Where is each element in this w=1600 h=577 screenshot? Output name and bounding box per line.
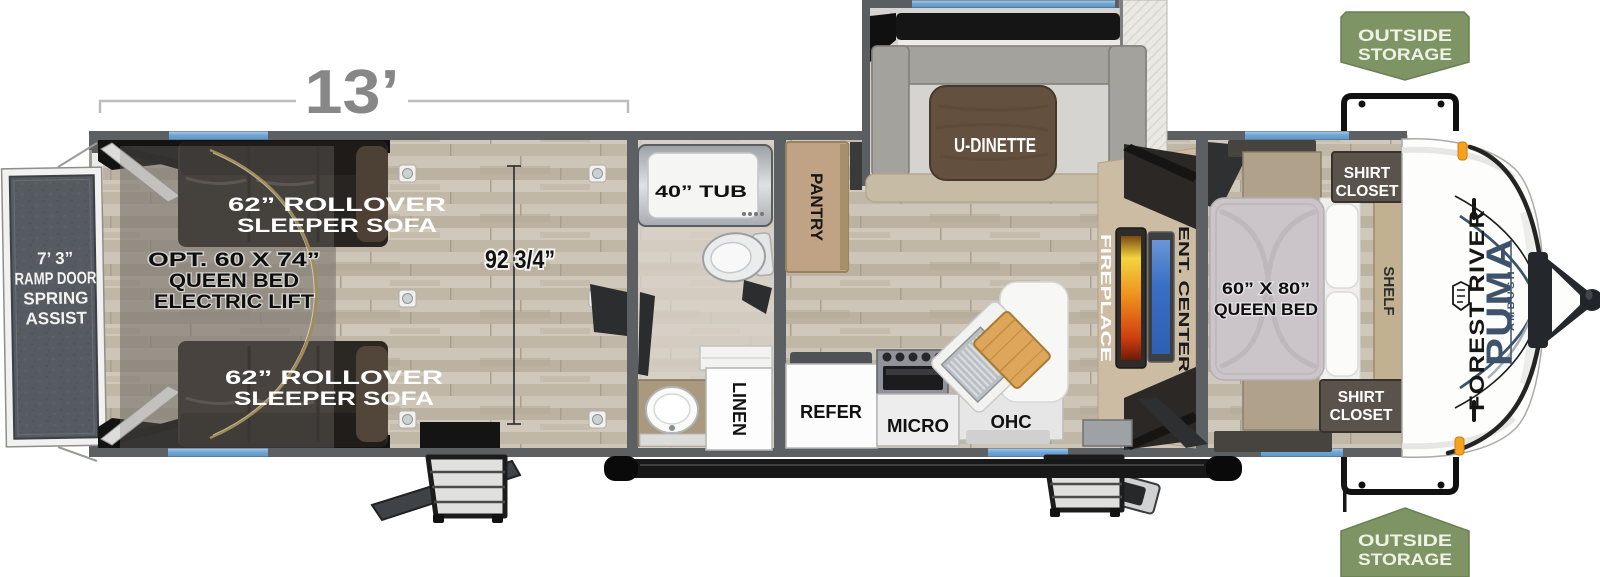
svg-text:QUEEN BED: QUEEN BED bbox=[1214, 300, 1318, 319]
svg-text:ENT. CENTER: ENT. CENTER bbox=[1175, 226, 1192, 372]
svg-text:SHELF: SHELF bbox=[1380, 266, 1397, 315]
svg-text:U-DINETTE: U-DINETTE bbox=[954, 135, 1036, 157]
svg-text:SHIRT: SHIRT bbox=[1344, 165, 1391, 182]
svg-text:QUEEN BED: QUEEN BED bbox=[169, 270, 299, 292]
svg-text:PANTRY: PANTRY bbox=[807, 173, 826, 242]
svg-text:RAMP DOOR: RAMP DOOR bbox=[14, 268, 96, 288]
svg-text:SLEEPER SOFA: SLEEPER SOFA bbox=[234, 388, 434, 410]
svg-text:92 3/4”: 92 3/4” bbox=[485, 246, 555, 274]
svg-text:13’: 13’ bbox=[305, 58, 400, 127]
svg-text:STORAGE: STORAGE bbox=[1358, 551, 1452, 569]
svg-text:OPT. 60 X 74”: OPT. 60 X 74” bbox=[148, 249, 320, 271]
svg-text:ASSIST: ASSIST bbox=[25, 308, 87, 328]
svg-text:SLEEPER SOFA: SLEEPER SOFA bbox=[237, 215, 437, 237]
svg-text:60” X 80”: 60” X 80” bbox=[1222, 279, 1310, 298]
svg-text:SHIRT: SHIRT bbox=[1338, 389, 1385, 406]
svg-text:7’ 3”: 7’ 3” bbox=[37, 249, 73, 269]
svg-text:62” ROLLOVER: 62” ROLLOVER bbox=[228, 194, 446, 216]
svg-text:62” ROLLOVER: 62” ROLLOVER bbox=[225, 367, 443, 389]
svg-text:OUTSIDE: OUTSIDE bbox=[1358, 27, 1452, 45]
svg-text:CLOSET: CLOSET bbox=[1330, 407, 1393, 424]
svg-text:SPRING: SPRING bbox=[23, 288, 89, 308]
svg-text:CLOSET: CLOSET bbox=[1336, 183, 1399, 200]
svg-text:40” TUB: 40” TUB bbox=[655, 183, 747, 201]
svg-text:OHC: OHC bbox=[990, 411, 1031, 432]
svg-text:REFER: REFER bbox=[800, 401, 862, 422]
svg-text:LINEN: LINEN bbox=[729, 382, 749, 436]
svg-text:ELECTRIC LIFT: ELECTRIC LIFT bbox=[154, 291, 314, 313]
svg-text:STORAGE: STORAGE bbox=[1358, 46, 1452, 64]
svg-text:MICRO: MICRO bbox=[887, 415, 949, 436]
svg-text:OUTSIDE: OUTSIDE bbox=[1358, 532, 1452, 550]
svg-text:FIREPLACE: FIREPLACE bbox=[1097, 234, 1114, 362]
